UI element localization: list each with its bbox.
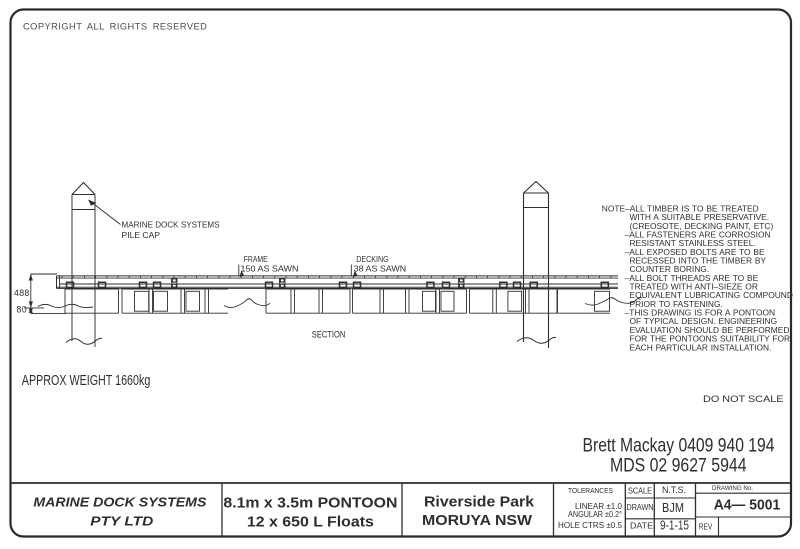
svg-text:DRAWING No.: DRAWING No. bbox=[712, 485, 753, 492]
svg-text:TOLERANCES: TOLERANCES bbox=[568, 486, 613, 495]
svg-text:REV: REV bbox=[699, 523, 713, 532]
svg-text:MARINE DOCK SYSTEMS: MARINE DOCK SYSTEMS bbox=[33, 495, 206, 510]
svg-text:COPYRIGHT ALL RIGHTS RESERV: COPYRIGHT ALL RIGHTS RESERVED bbox=[23, 22, 207, 32]
svg-text:DECKING: DECKING bbox=[356, 255, 389, 264]
svg-text:ANGULAR ±0.2°: ANGULAR ±0.2° bbox=[568, 510, 622, 519]
svg-text:80: 80 bbox=[17, 304, 27, 314]
svg-text:APPROX WEIGHT 1660kg: APPROX WEIGHT 1660kg bbox=[22, 373, 151, 389]
svg-text:DRAWN: DRAWN bbox=[627, 502, 654, 512]
svg-text:PILE CAP: PILE CAP bbox=[122, 231, 161, 240]
svg-text:MARINE DOCK SYSTEMS: MARINE DOCK SYSTEMS bbox=[122, 221, 221, 230]
svg-text:DO NOT SCALE: DO NOT SCALE bbox=[703, 394, 784, 405]
svg-text:BJM: BJM bbox=[662, 501, 684, 515]
svg-text:38 AS SAWN: 38 AS SAWN bbox=[354, 265, 407, 274]
svg-text:HOLE CTRS ±0.5: HOLE CTRS ±0.5 bbox=[558, 521, 623, 530]
svg-text:9-1-15: 9-1-15 bbox=[660, 518, 689, 532]
svg-text:FRAME: FRAME bbox=[244, 255, 268, 264]
svg-text:488: 488 bbox=[14, 288, 30, 298]
svg-text:12 x 650 L Floats: 12 x 650 L Floats bbox=[247, 513, 374, 530]
svg-text:8.1m x 3.5m PONTOON: 8.1m x 3.5m PONTOON bbox=[223, 494, 397, 511]
svg-text:MORUYA NSW: MORUYA NSW bbox=[422, 513, 532, 529]
svg-text:N.T.S.: N.T.S. bbox=[662, 485, 686, 495]
svg-text:Brett Mackay 0409 940 194: Brett Mackay 0409 940 194 bbox=[583, 435, 775, 457]
svg-text:SCALE: SCALE bbox=[628, 486, 652, 496]
svg-text:SECTION: SECTION bbox=[312, 330, 346, 341]
svg-text:A4— 5001: A4— 5001 bbox=[714, 497, 781, 514]
svg-text:MDS 02 9627 5944: MDS 02 9627 5944 bbox=[610, 455, 747, 477]
svg-text:150 AS SAWN: 150 AS SAWN bbox=[241, 265, 299, 274]
svg-text:Riverside Park: Riverside Park bbox=[424, 495, 535, 511]
svg-text:PTY LTD: PTY LTD bbox=[90, 514, 154, 529]
svg-text:EACH PARTICULAR INSTALLATION: EACH PARTICULAR INSTALLATION. bbox=[630, 342, 772, 352]
svg-text:DATE: DATE bbox=[630, 521, 653, 531]
